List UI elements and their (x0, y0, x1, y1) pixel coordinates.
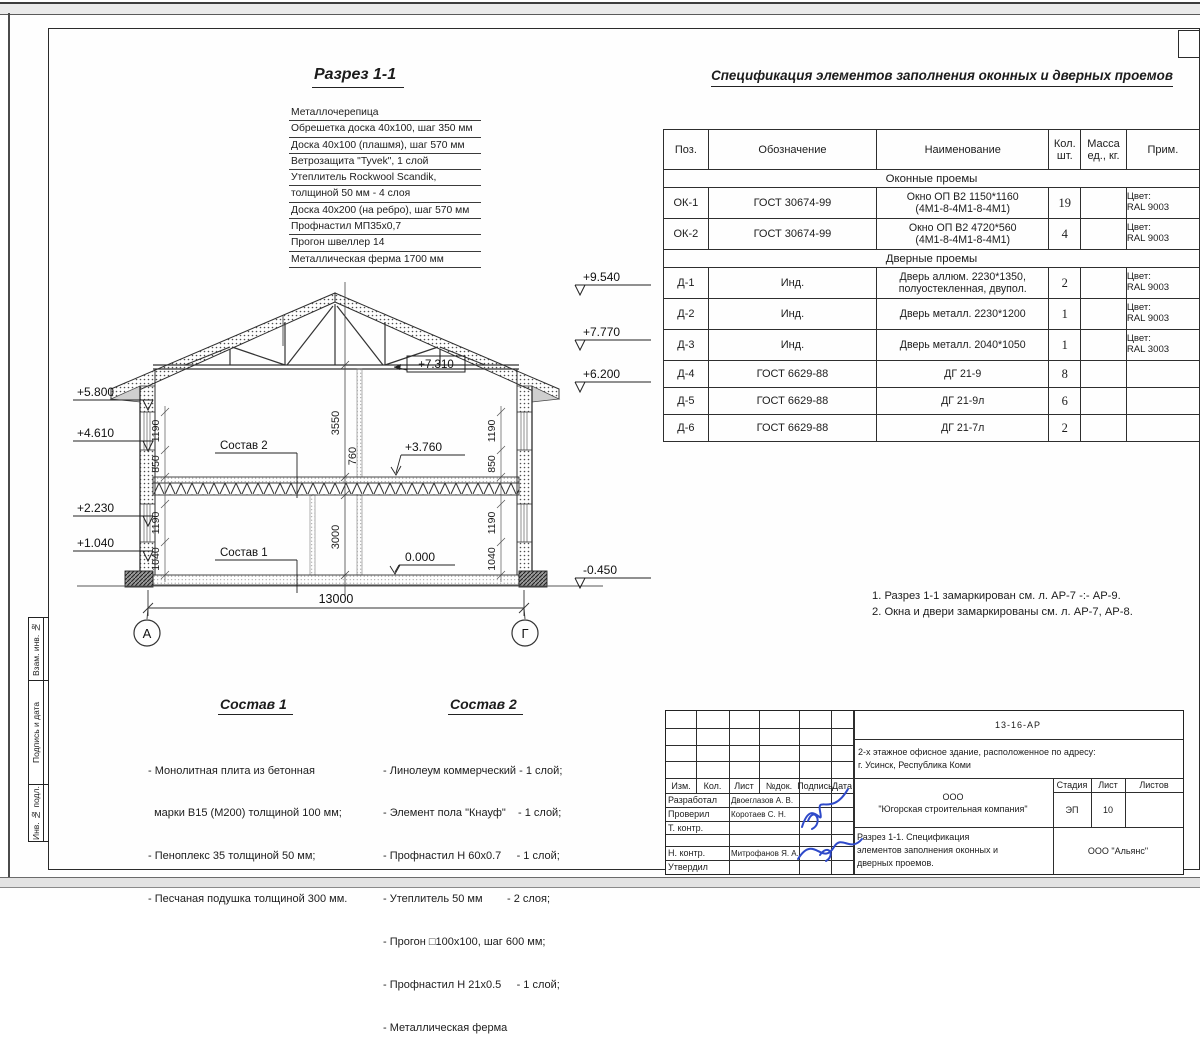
cell-mass (1081, 415, 1127, 442)
dim-center (341, 282, 349, 595)
tb-col-list: Лист (729, 778, 759, 793)
sostav1-list: - Монолитная плита из бетонная марки В15… (148, 735, 347, 935)
building-section-drawing: 3550 760 3000 1190 850 1190 1040 1190 (55, 50, 665, 650)
cell-pos: Д-3 (664, 330, 709, 361)
sidebar-sub (43, 681, 48, 784)
cell-note (1126, 415, 1199, 442)
elev-6200: +6.200 (583, 367, 620, 381)
cell-name: Дверь аллюм. 2230*1350, полуостекленная,… (877, 268, 1049, 299)
sidebar-sub (43, 785, 48, 841)
elev-2230: +2.230 (77, 501, 114, 515)
sostav2-item: - Элемент пола "Кнауф" - 1 слой; (383, 806, 562, 820)
cell-note: Цвет: RAL 9003 (1126, 268, 1199, 299)
cell-mass (1081, 219, 1127, 250)
dim-850-r: 850 (486, 455, 498, 473)
dim-1190-l2: 1190 (150, 420, 162, 443)
cell-mass (1081, 188, 1127, 219)
sostav2-item: - Профнастил Н 60х0.7 - 1 слой; (383, 849, 562, 863)
tb-role: Утвердил (668, 860, 729, 874)
tb-sheet-title: Разрез 1-1. Спецификация элементов запол… (857, 828, 1049, 873)
dim-13000-label: 13000 (319, 592, 354, 606)
cell-pos: ОК-1 (664, 188, 709, 219)
cell-qty: 8 (1049, 361, 1081, 388)
tb-role: Т. контр. (668, 821, 729, 834)
tb-name: Коротаев С. Н. (731, 807, 799, 821)
sostav2-item: - Прогон □100х100, шаг 600 мм; (383, 935, 562, 949)
sostav2-callout: Состав 2 (220, 440, 268, 452)
sostav2-item: - Утеплитель 50 мм - 2 слоя; (383, 892, 562, 906)
elev-0450: -0.450 (583, 563, 617, 577)
dim-1040-r: 1040 (486, 547, 498, 571)
cell-qty: 2 (1049, 415, 1081, 442)
elev-1040: +1.040 (77, 536, 114, 550)
tb-sheet-label: Лист (1091, 778, 1125, 792)
cell-desig: ГОСТ 30674-99 (708, 188, 876, 219)
cell-qty: 4 (1049, 219, 1081, 250)
sostav1-title: Состав 1 (218, 696, 293, 715)
col-name: Наименование (877, 130, 1049, 170)
cell-qty: 1 (1049, 299, 1081, 330)
cell-note (1126, 388, 1199, 415)
cell-qty: 2 (1049, 268, 1081, 299)
cell-desig: ГОСТ 6629-88 (708, 388, 876, 415)
cell-mass (1081, 388, 1127, 415)
dim-3000: 3000 (330, 525, 342, 549)
sostav1-title-text: Состав 1 (218, 696, 293, 715)
dim-1190-r2: 1190 (486, 420, 498, 443)
sostav-labels: Состав 2 Состав 1 (215, 440, 297, 593)
elev-7310: +7.310 (418, 359, 454, 371)
elev-0000-mark: 0.000 (390, 550, 455, 574)
col-desig: Обозначение (708, 130, 876, 170)
note-1: 1. Разрез 1-1 замаркирован см. л. АР-7 -… (872, 589, 1133, 605)
dim-3550: 3550 (330, 411, 342, 435)
cell-desig: Инд. (708, 299, 876, 330)
tb-name: Митрофанов Я. А. (731, 846, 799, 860)
tb-col-ndok: №док. (759, 778, 799, 793)
sidebar-box-vzam: Взам. инв. № (28, 617, 49, 682)
cell-note (1126, 361, 1199, 388)
cell-name: ДГ 21-9л (877, 388, 1049, 415)
sostav1-item: - Песчаная подушка толщиной 300 мм. (148, 892, 347, 906)
cell-desig: Инд. (708, 330, 876, 361)
cell-desig: ГОСТ 6629-88 (708, 361, 876, 388)
cell-pos: Д-5 (664, 388, 709, 415)
cell-qty: 6 (1049, 388, 1081, 415)
col-mass: Масса ед., кг. (1081, 130, 1127, 170)
cell-mass (1081, 268, 1127, 299)
elev-4610: +4.610 (77, 426, 114, 440)
cell-mass (1081, 299, 1127, 330)
ground (77, 571, 603, 587)
tb-sheet-value: 10 (1091, 792, 1125, 827)
elev-0000: 0.000 (405, 550, 435, 564)
sidebar-label: Взам. инв. № (29, 618, 43, 681)
cell-pos: Д-2 (664, 299, 709, 330)
tb-col-kol: Кол. (696, 778, 729, 793)
sostav2-list: - Линолеум коммерческий - 1 слой; - Элем… (383, 735, 562, 1064)
dim-1190-r1: 1190 (486, 512, 498, 535)
cell-note: Цвет: RAL 3003 (1126, 330, 1199, 361)
interfloor-slab (153, 477, 519, 495)
elev-9540: +9.540 (583, 270, 620, 284)
sidebar-box-podpis: Подпись и дата (28, 680, 49, 785)
drawing-sheet: Разрез 1-1 Спецификация элементов заполн… (0, 0, 1200, 900)
elev-7770: +7.770 (583, 325, 620, 339)
sostav2-item: - Линолеум коммерческий - 1 слой; (383, 764, 562, 778)
cell-note: Цвет: RAL 9003 (1126, 299, 1199, 330)
copy-stamp-box (1178, 30, 1200, 58)
tb-stage-value: ЭП (1053, 792, 1091, 827)
tb-company: ООО "Югорская строительная компания" (853, 778, 1053, 827)
tb-sheets-label: Листов (1125, 778, 1183, 792)
signature-2 (792, 829, 866, 871)
group-windows: Оконные проемы (664, 170, 1200, 188)
sostav2-title: Состав 2 (448, 696, 523, 715)
sostav1-item: - Пеноплекс 35 толщиной 50 мм; (148, 849, 347, 863)
dim-1190-l1: 1190 (150, 512, 162, 535)
cell-name: Окно ОП В2 4720*560 (4М1-8-4М1-8-4М1) (877, 219, 1049, 250)
dim-760: 760 (347, 447, 359, 465)
sostav1-callout: Состав 1 (220, 547, 268, 559)
col-note: Прим. (1126, 130, 1199, 170)
col-pos: Поз. (664, 130, 709, 170)
notes: 1. Разрез 1-1 замаркирован см. л. АР-7 -… (872, 589, 1133, 620)
tb-role: Н. контр. (668, 846, 729, 860)
sidebar-label: Инв. № подл. (29, 785, 43, 841)
title-block: Изм. Кол. Лист №док. Подпись Дата Разраб… (665, 710, 1184, 875)
cell-qty: 1 (1049, 330, 1081, 361)
sostav1-item: марки В15 (М200) толщиной 100 мм; (148, 806, 347, 820)
sostav2-item: - Профнастил Н 21х0.5 - 1 слой; (383, 978, 562, 992)
cell-desig: ГОСТ 30674-99 (708, 219, 876, 250)
cell-name: Окно ОП В2 1150*1160 (4М1-8-4М1-8-4М1) (877, 188, 1049, 219)
sostav1-item: - Монолитная плита из бетонная (148, 764, 347, 778)
sidebar-box-inv: Инв. № подл. (28, 784, 49, 842)
cell-desig: ГОСТ 6629-88 (708, 415, 876, 442)
dim-850-l: 850 (150, 455, 162, 473)
cell-pos: Д-4 (664, 361, 709, 388)
elev-3760-mark: +3.760 (391, 440, 465, 475)
cell-pos: Д-6 (664, 415, 709, 442)
cell-mass (1081, 361, 1127, 388)
sidebar-label: Подпись и дата (29, 681, 43, 784)
cell-qty: 19 (1049, 188, 1081, 219)
tb-col-izm: Изм. (666, 778, 696, 793)
tb-doc-code: 13-16-АР (853, 711, 1183, 739)
cell-mass (1081, 330, 1127, 361)
scan-band-top (0, 2, 1200, 15)
spec-table: Поз. Обозначение Наименование Кол. шт. М… (663, 129, 1200, 442)
cell-name: Дверь металл. 2230*1200 (877, 299, 1049, 330)
cell-desig: Инд. (708, 268, 876, 299)
sidebar-sub (43, 618, 48, 681)
cell-note: Цвет: RAL 9003 (1126, 188, 1199, 219)
sidebar-stamps: Взам. инв. № Подпись и дата Инв. № подл. (28, 618, 49, 842)
axis-markers (134, 620, 538, 646)
tb-role: Проверил (668, 807, 729, 821)
sostav2-title-text: Состав 2 (448, 696, 523, 715)
col-qty: Кол. шт. (1049, 130, 1081, 170)
cell-note: Цвет: RAL 9003 (1126, 219, 1199, 250)
cell-name: ДГ 21-7л (877, 415, 1049, 442)
tb-project: 2-х этажное офисное здание, расположенно… (858, 741, 1178, 777)
cell-name: Дверь металл. 2040*1050 (877, 330, 1049, 361)
tb-stage-label: Стадия (1053, 778, 1091, 792)
cell-name: ДГ 21-9 (877, 361, 1049, 388)
spec-title: Спецификация элементов заполнения оконны… (703, 68, 1181, 87)
note-2: 2. Окна и двери замаркированы см. л. АР-… (872, 605, 1133, 621)
group-doors: Дверные проемы (664, 250, 1200, 268)
cell-pos: Д-1 (664, 268, 709, 299)
axis-a: А (143, 626, 152, 641)
tb-role: Разработал (668, 793, 729, 807)
sostav2-item: - Металлическая ферма (383, 1021, 562, 1035)
elev-5800: +5.800 (77, 385, 114, 399)
axis-g: Г (521, 626, 528, 641)
elev-3760: +3.760 (405, 440, 442, 454)
sheet-left-edge (8, 13, 10, 877)
cell-pos: ОК-2 (664, 219, 709, 250)
tb-contractor: ООО "Альянс" (1053, 827, 1183, 874)
tb-name: Двоеглазов А. В. (731, 793, 799, 807)
spec-title-text: Спецификация элементов заполнения оконны… (711, 68, 1173, 87)
